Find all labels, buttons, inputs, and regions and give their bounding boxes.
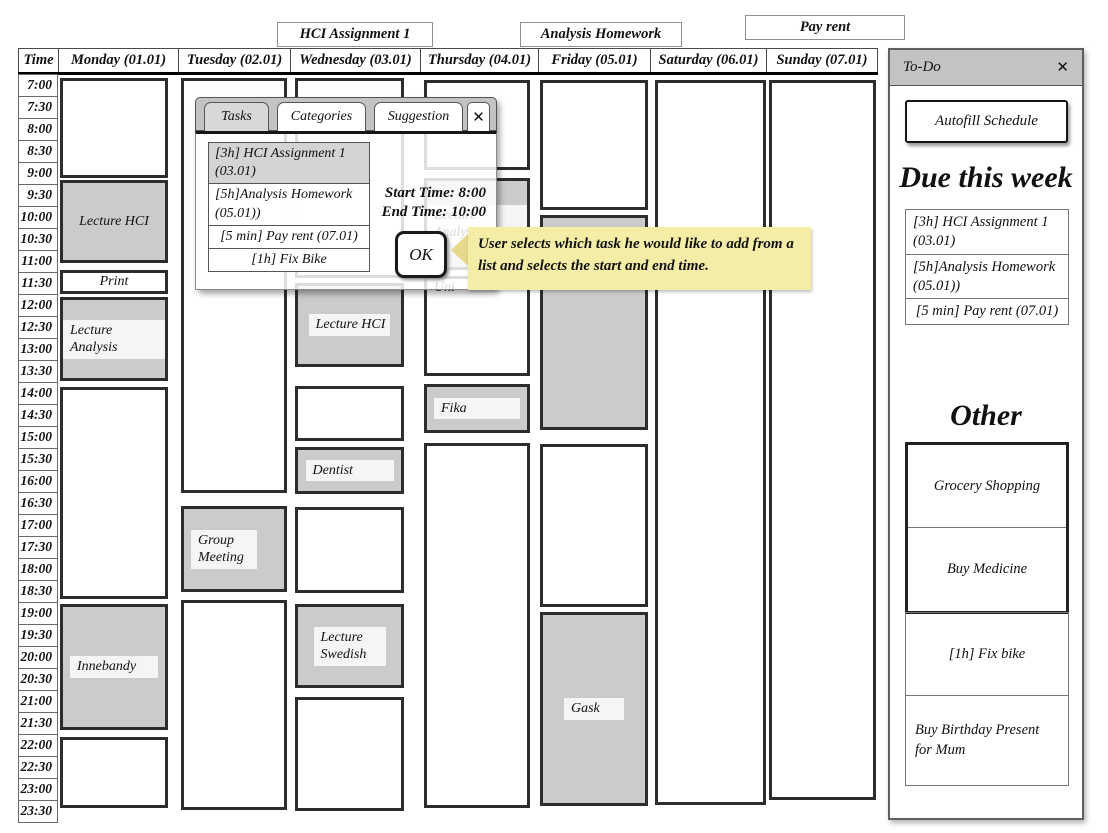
time-cell: 21:00 — [18, 690, 58, 713]
time-cell: 18:30 — [18, 580, 58, 603]
event-label: Print — [100, 273, 129, 291]
calendar-event[interactable] — [540, 80, 648, 210]
calendar-event[interactable] — [295, 507, 404, 593]
task-row-pay-rent[interactable]: [5 min] Pay rent (07.01) — [208, 225, 370, 249]
todo-panel-title: To-Do — [890, 59, 941, 76]
day-header-tuesday: Tuesday (02.01) — [178, 48, 290, 72]
time-column-header: Time — [18, 48, 58, 72]
todo-titlebar[interactable]: To-Do ✕ — [890, 50, 1082, 86]
calendar-event[interactable]: Gask — [540, 612, 648, 806]
time-cell: 16:30 — [18, 492, 58, 515]
time-cell: 19:30 — [18, 624, 58, 647]
ok-button[interactable]: OK — [395, 231, 447, 278]
event-label: Fika — [434, 398, 520, 420]
calendar-event[interactable] — [60, 78, 168, 178]
time-cell: 8:30 — [18, 140, 58, 163]
time-cell: 16:00 — [18, 470, 58, 493]
calendar-event[interactable]: Lecture Analysis — [60, 297, 168, 381]
tooltip-arrow-icon — [451, 234, 468, 266]
floating-task-chip-analysis[interactable]: Analysis Homework — [520, 22, 682, 47]
calendar-event[interactable]: Print — [60, 270, 168, 294]
floating-task-chip-payrent[interactable]: Pay rent — [745, 15, 905, 40]
task-list: [3h] HCI Assignment 1 (03.01) [5h]Analys… — [208, 143, 370, 272]
event-label: Innebandy — [70, 656, 158, 678]
other-group-box: Grocery Shopping Buy Medicine — [905, 442, 1069, 614]
event-label: Lecture HCI — [309, 314, 391, 336]
calendar-event[interactable]: Lecture HCI — [295, 283, 404, 367]
other-item-buy-medicine[interactable]: Buy Medicine — [908, 528, 1066, 611]
event-label: Lecture Analysis — [63, 320, 165, 359]
calendar-event[interactable] — [655, 80, 766, 805]
close-icon[interactable]: ✕ — [467, 102, 490, 132]
time-cell: 11:30 — [18, 272, 58, 295]
time-cell: 21:30 — [18, 712, 58, 735]
other-item-birthday-present[interactable]: Buy Birthday Present for Mum — [905, 695, 1069, 786]
time-cell: 17:30 — [18, 536, 58, 559]
calendar-event[interactable] — [181, 600, 287, 810]
event-label: Lecture Swedish — [314, 627, 386, 666]
calendar-event[interactable] — [295, 697, 404, 811]
calendar-event[interactable] — [295, 386, 404, 441]
close-icon[interactable]: ✕ — [1056, 58, 1082, 77]
end-time-field[interactable]: End Time: 10:00 — [374, 203, 486, 222]
time-fields: Start Time: 8:00 End Time: 10:00 — [374, 184, 486, 222]
time-cell: 20:30 — [18, 668, 58, 691]
time-cell: 20:00 — [18, 646, 58, 669]
time-cell: 13:30 — [18, 360, 58, 383]
due-item-pay-rent[interactable]: [5 min] Pay rent (07.01) — [905, 298, 1069, 325]
calendar-event[interactable]: Uni — [424, 276, 530, 376]
tab-categories[interactable]: Categories — [277, 102, 366, 132]
calendar-event[interactable] — [769, 80, 876, 800]
time-cell: 14:00 — [18, 382, 58, 405]
annotation-tooltip: User selects which task he would like to… — [468, 227, 811, 290]
calendar-event[interactable] — [540, 444, 648, 607]
time-cell: 12:00 — [18, 294, 58, 317]
time-cell: 17:00 — [18, 514, 58, 537]
time-cell: 22:30 — [18, 756, 58, 779]
time-cell: 9:30 — [18, 184, 58, 207]
day-header-friday: Friday (05.01) — [538, 48, 650, 72]
calendar-event[interactable]: Fika — [424, 384, 530, 433]
tab-tasks[interactable]: Tasks — [204, 102, 269, 132]
calendar-event[interactable]: Dentist — [295, 447, 404, 494]
due-item-analysis-homework[interactable]: [5h]Analysis Homework (05.01)) — [905, 254, 1069, 300]
time-cell: 10:30 — [18, 228, 58, 251]
other-item-fix-bike[interactable]: [1h] Fix bike — [905, 612, 1069, 696]
time-cell: 11:00 — [18, 250, 58, 273]
time-cell: 23:30 — [18, 800, 58, 823]
dialog-titlebar[interactable]: Tasks Categories Suggestion ✕ — [195, 97, 497, 131]
time-cell: 15:30 — [18, 448, 58, 471]
other-heading: Other — [890, 400, 1082, 432]
time-cell: 19:00 — [18, 602, 58, 625]
autofill-schedule-button[interactable]: Autofill Schedule — [905, 100, 1068, 143]
task-row-analysis-homework[interactable]: [5h]Analysis Homework (05.01)) — [208, 183, 370, 225]
time-cell: 13:00 — [18, 338, 58, 361]
time-cell: 7:00 — [18, 74, 58, 97]
event-label: Dentist — [306, 460, 394, 482]
calendar-event[interactable]: Innebandy — [60, 604, 168, 730]
due-this-week-heading: Due this week — [890, 162, 1082, 194]
start-time-field[interactable]: Start Time: 8:00 — [374, 184, 486, 203]
calendar-event[interactable]: Lecture HCI — [60, 180, 168, 263]
due-item-hci-assignment[interactable]: [3h] HCI Assignment 1 (03.01) — [905, 209, 1069, 255]
due-this-week-list: [3h] HCI Assignment 1 (03.01) [5h]Analys… — [905, 210, 1069, 325]
todo-panel: To-Do ✕ Autofill Schedule Due this week … — [888, 48, 1084, 820]
time-cell: 7:30 — [18, 96, 58, 119]
time-cell: 15:00 — [18, 426, 58, 449]
day-header-monday: Monday (01.01) — [58, 48, 178, 72]
calendar-event[interactable] — [424, 443, 530, 808]
day-header-wednesday: Wednesday (03.01) — [290, 48, 420, 72]
day-header-saturday: Saturday (06.01) — [650, 48, 766, 72]
dialog-body: [3h] HCI Assignment 1 (03.01) [5h]Analys… — [195, 131, 497, 290]
calendar-event[interactable] — [60, 387, 168, 599]
calendar-event[interactable] — [60, 737, 168, 808]
header-divider — [18, 72, 878, 75]
other-item-grocery-shopping[interactable]: Grocery Shopping — [908, 445, 1066, 528]
schedule-app-canvas: HCI Assignment 1 Analysis Homework Pay r… — [0, 0, 1108, 833]
time-cell: 12:30 — [18, 316, 58, 339]
calendar-event[interactable]: Lecture Swedish — [295, 604, 404, 688]
time-cell: 22:00 — [18, 734, 58, 757]
event-label: Lecture HCI — [79, 213, 149, 231]
time-cell: 23:00 — [18, 778, 58, 801]
time-cell: 8:00 — [18, 118, 58, 141]
day-header-sunday: Sunday (07.01) — [766, 48, 878, 72]
calendar-event[interactable]: Group Meeting — [181, 506, 287, 592]
day-header-thursday: Thursday (04.01) — [420, 48, 538, 72]
time-cell: 10:00 — [18, 206, 58, 229]
task-row-hci-assignment[interactable]: [3h] HCI Assignment 1 (03.01) — [208, 142, 370, 184]
floating-task-chip-hci[interactable]: HCI Assignment 1 — [277, 22, 433, 47]
tab-suggestion[interactable]: Suggestion — [374, 102, 463, 132]
time-cell: 14:30 — [18, 404, 58, 427]
time-cell: 18:00 — [18, 558, 58, 581]
task-row-fix-bike[interactable]: [1h] Fix Bike — [208, 248, 370, 272]
event-label: Group Meeting — [191, 530, 257, 569]
time-cell: 9:00 — [18, 162, 58, 185]
event-label: Gask — [564, 698, 624, 720]
